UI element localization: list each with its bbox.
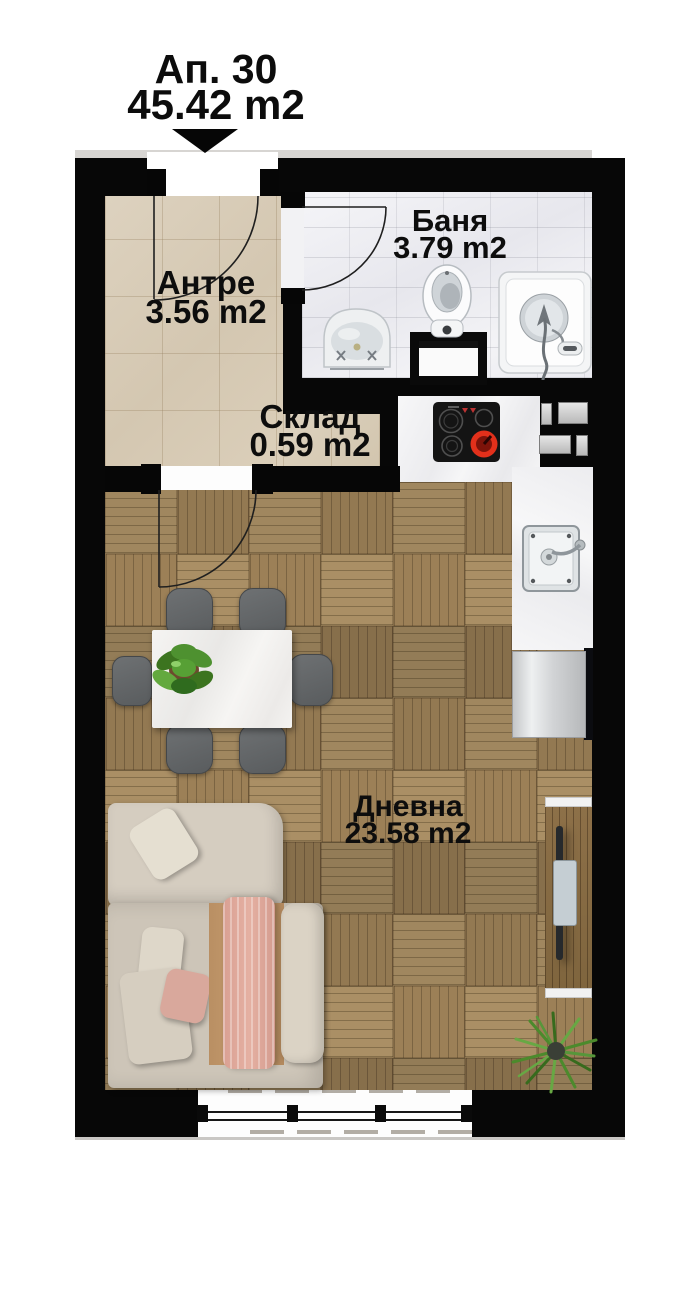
tv-bracket [553,860,577,926]
parquet-tile [393,626,465,698]
entrance-door-opening [147,152,278,196]
entrance-door-jamb [260,169,279,196]
floorplan-page: Ап. 30 45.42 m2 [0,0,700,1300]
tv-cabinet-cap [545,988,592,998]
plan-title: Ап. 30 45.42 m2 [0,52,432,122]
living-door-jamb [141,464,161,494]
parquet-tile [465,914,537,986]
room-label-banya: Баня 3.79 m2 [370,207,530,261]
dining-chair [166,724,213,774]
bed-throw [223,897,275,1069]
living-door-jamb [252,464,273,494]
room-label-antre: Антре 3.56 m2 [116,268,296,326]
room-label-dnevna: Дневна 23.58 m2 [318,793,498,847]
apartment-area: 45.42 m2 [0,87,432,122]
wall-vent [558,402,588,424]
parquet-tile [393,482,465,554]
balcony-dashes [250,1130,472,1134]
wall-vent [539,435,571,454]
room-name: Дневна [318,793,498,820]
parquet-tile [393,986,465,1058]
window-glass-line [198,1111,472,1113]
room-area: 0.59 m2 [220,431,400,459]
room-label-sklad: Склад 0.59 m2 [220,403,400,459]
window-mullion [287,1105,298,1122]
window-mullion [197,1105,208,1122]
washing-machine [410,332,487,385]
bed-bolster [281,903,324,1063]
parquet-tile [321,986,393,1058]
washing-machine-door [419,341,478,348]
room-area: 3.56 m2 [116,297,296,326]
parquet-tile [321,1058,393,1090]
parquet-tile [321,914,393,986]
kitchen-counter-side [512,467,593,650]
parquet-tile [393,698,465,770]
entrance-arrow-icon [172,129,238,153]
bathroom-door-jamb [281,192,305,208]
entrance-door-jamb [147,169,166,196]
parquet-tile [465,1058,537,1090]
parquet-tile [321,482,393,554]
parquet-tile [465,986,537,1058]
parquet-tile [393,554,465,626]
dining-chair [289,654,333,706]
wall-vent [576,435,588,456]
parquet-tile [393,914,465,986]
wall-vent [541,403,552,425]
parquet-tile [177,482,249,554]
window-mullion [375,1105,386,1122]
parquet-tile [393,842,465,914]
dining-chair [112,656,152,706]
dining-chair [239,724,286,774]
parquet-tile [321,554,393,626]
parquet-tile [393,1058,465,1090]
parquet-tile [465,842,537,914]
living-door-opening [152,466,255,490]
terrace-edge-line [75,1137,625,1140]
window-mullion [461,1105,472,1122]
parquet-tile [537,1058,592,1090]
room-area: 23.58 m2 [318,820,498,847]
tv-cabinet-cap [545,797,592,807]
room-area: 3.79 m2 [370,234,530,261]
parquet-tile [321,842,393,914]
window-glass-line [198,1119,472,1121]
fridge [512,651,586,738]
parquet-tile [321,698,393,770]
interior-wall [255,466,400,492]
dining-table [152,630,292,728]
threshold-dashes [228,1090,452,1093]
